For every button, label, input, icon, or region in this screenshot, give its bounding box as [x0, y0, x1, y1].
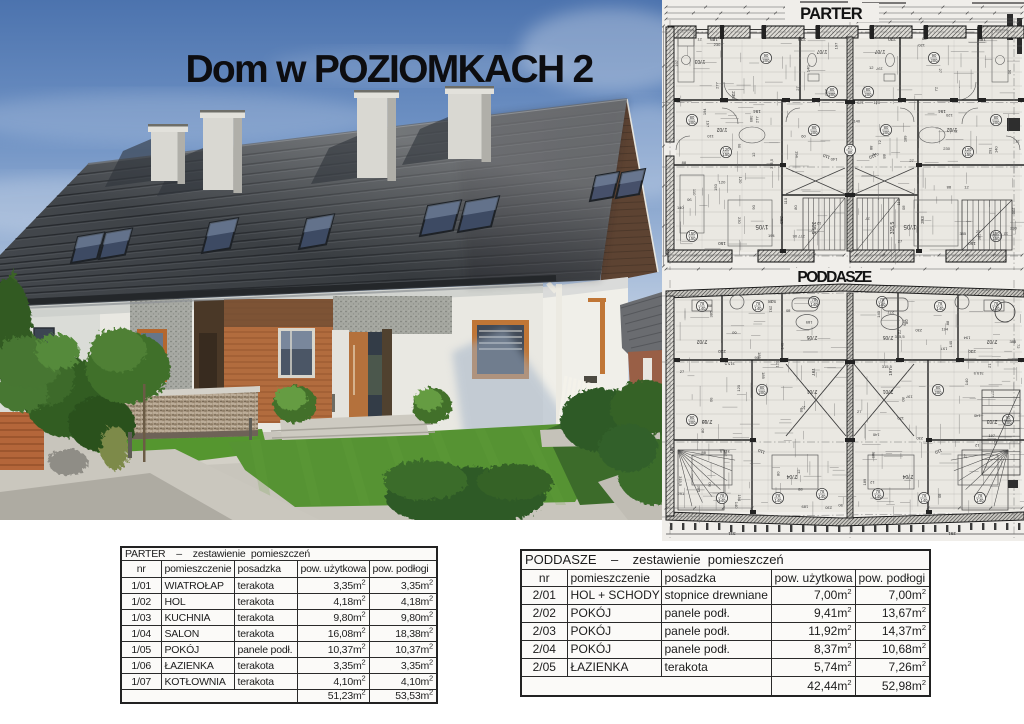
svg-text:538: 538 [768, 299, 776, 304]
svg-text:230: 230 [1012, 208, 1017, 215]
svg-text:140: 140 [805, 65, 810, 72]
svg-text:120: 120 [873, 100, 880, 105]
svg-text:1'/02: 1'/02 [716, 126, 727, 132]
svg-text:230: 230 [1010, 226, 1017, 231]
svg-text:194: 194 [794, 151, 799, 158]
svg-text:27: 27 [898, 239, 903, 244]
svg-text:277: 277 [755, 115, 760, 122]
svg-text:60: 60 [801, 133, 806, 138]
svg-text:197: 197 [674, 59, 679, 66]
svg-text:140: 140 [699, 306, 707, 311]
svg-text:12: 12 [697, 37, 702, 42]
svg-text:194: 194 [768, 233, 775, 238]
svg-text:200: 200 [689, 420, 697, 425]
svg-text:88: 88 [869, 146, 874, 151]
svg-text:393: 393 [920, 216, 925, 224]
svg-text:120: 120 [856, 100, 863, 105]
svg-text:110: 110 [692, 189, 697, 196]
svg-text:200: 200 [759, 390, 767, 395]
svg-text:230: 230 [737, 217, 742, 224]
svg-text:140: 140 [872, 151, 879, 156]
svg-text:140: 140 [937, 306, 945, 311]
svg-text:88: 88 [708, 303, 713, 308]
svg-text:27: 27 [795, 86, 800, 91]
svg-text:150: 150 [993, 236, 1001, 241]
svg-text:797: 797 [811, 368, 816, 376]
svg-text:194: 194 [938, 109, 946, 114]
svg-text:150: 150 [713, 183, 718, 190]
svg-text:197: 197 [905, 395, 912, 400]
svg-text:150: 150 [723, 152, 731, 157]
svg-text:385: 385 [976, 233, 981, 240]
svg-text:385: 385 [709, 310, 714, 317]
svg-text:277: 277 [990, 391, 995, 398]
svg-text:277: 277 [887, 310, 894, 315]
svg-text:200: 200 [763, 58, 771, 63]
svg-text:140: 140 [973, 413, 980, 418]
svg-text:120: 120 [775, 360, 780, 367]
svg-text:120: 120 [897, 416, 904, 421]
svg-text:315,5: 315,5 [678, 476, 683, 487]
svg-text:487: 487 [669, 446, 674, 454]
svg-text:194: 194 [941, 326, 948, 331]
svg-text:140: 140 [780, 342, 785, 349]
svg-text:140: 140 [677, 205, 684, 210]
svg-text:150: 150 [689, 236, 697, 241]
svg-text:PODDASZE: PODDASZE [797, 269, 872, 286]
svg-text:120: 120 [917, 43, 924, 48]
svg-text:12: 12 [869, 65, 874, 70]
svg-text:80: 80 [848, 150, 853, 155]
svg-text:315,5: 315,5 [724, 361, 735, 366]
svg-text:72: 72 [877, 139, 882, 144]
svg-text:200: 200 [935, 390, 943, 395]
svg-text:150: 150 [718, 241, 726, 246]
svg-text:200: 200 [811, 130, 819, 135]
svg-text:140: 140 [755, 306, 763, 311]
svg-text:140: 140 [964, 378, 969, 385]
svg-text:200: 200 [689, 120, 697, 125]
svg-text:385: 385 [959, 231, 966, 236]
svg-text:1'/03: 1'/03 [694, 58, 705, 64]
svg-text:311: 311 [728, 531, 736, 536]
svg-text:189: 189 [903, 135, 908, 142]
svg-text:315,5: 315,5 [769, 158, 774, 169]
svg-text:197: 197 [834, 42, 839, 49]
svg-text:194: 194 [702, 108, 707, 115]
svg-text:230: 230 [824, 506, 831, 511]
svg-text:2'/04: 2'/04 [902, 473, 913, 479]
svg-text:72: 72 [934, 86, 939, 91]
svg-text:80: 80 [793, 205, 798, 210]
svg-text:277: 277 [715, 81, 720, 88]
svg-text:189: 189 [757, 352, 762, 359]
svg-text:197: 197 [940, 346, 947, 351]
svg-text:90: 90 [751, 204, 756, 209]
svg-text:200: 200 [883, 130, 891, 135]
svg-text:2'/01: 2'/01 [882, 388, 893, 394]
svg-text:110: 110 [896, 198, 901, 205]
svg-text:197: 197 [706, 121, 711, 128]
svg-text:140: 140 [830, 157, 837, 162]
svg-text:72: 72 [953, 129, 958, 134]
svg-text:291: 291 [948, 531, 956, 536]
svg-text:385: 385 [723, 449, 728, 456]
svg-text:315,5: 315,5 [973, 371, 984, 376]
svg-text:140: 140 [948, 340, 953, 347]
svg-text:140: 140 [921, 498, 929, 503]
svg-text:140: 140 [811, 302, 819, 307]
svg-text:27: 27 [938, 68, 943, 73]
svg-text:194: 194 [753, 109, 761, 114]
svg-text:80: 80 [776, 471, 781, 476]
svg-text:12: 12 [964, 184, 969, 189]
svg-text:88: 88 [946, 185, 951, 190]
svg-text:385: 385 [697, 486, 702, 493]
svg-text:140: 140 [876, 310, 881, 317]
svg-text:80: 80 [700, 428, 705, 433]
svg-text:120: 120 [719, 179, 726, 184]
svg-text:90: 90 [707, 482, 712, 487]
svg-text:88: 88 [882, 153, 887, 158]
svg-text:200: 200 [865, 92, 873, 97]
svg-text:197: 197 [875, 67, 882, 72]
svg-text:80: 80 [938, 494, 943, 499]
svg-text:385: 385 [1009, 339, 1016, 344]
svg-text:236: 236 [731, 91, 736, 99]
svg-text:140: 140 [853, 118, 860, 123]
svg-text:110: 110 [783, 197, 788, 204]
svg-text:200: 200 [931, 58, 939, 63]
svg-text:80: 80 [798, 407, 803, 412]
svg-text:PARTER: PARTER [800, 5, 863, 23]
svg-text:90: 90 [793, 234, 798, 239]
svg-text:189: 189 [761, 372, 766, 379]
svg-text:12: 12 [974, 443, 979, 448]
svg-text:110: 110 [707, 134, 714, 139]
svg-text:150: 150 [992, 438, 997, 445]
svg-text:393: 393 [779, 216, 784, 224]
svg-text:315,5: 315,5 [882, 364, 893, 369]
svg-text:60: 60 [731, 331, 736, 336]
svg-text:189: 189 [805, 320, 812, 325]
svg-text:1'/07: 1'/07 [874, 48, 885, 54]
svg-text:88: 88 [945, 320, 950, 325]
svg-text:90: 90 [838, 503, 843, 508]
svg-text:315,5: 315,5 [810, 222, 816, 235]
svg-text:12: 12 [796, 469, 801, 474]
svg-text:27: 27 [976, 229, 981, 234]
svg-text:12: 12 [1015, 139, 1020, 144]
svg-text:90: 90 [709, 397, 714, 402]
svg-text:140: 140 [775, 498, 783, 503]
svg-text:189: 189 [903, 319, 908, 326]
svg-text:140: 140 [977, 498, 985, 503]
svg-text:12: 12 [751, 152, 756, 157]
svg-text:150: 150 [968, 241, 976, 246]
svg-text:27: 27 [680, 369, 685, 374]
svg-text:27: 27 [865, 216, 870, 221]
svg-text:230: 230 [968, 349, 976, 354]
svg-text:Dom w POZIOMKACH 2: Dom w POZIOMKACH 2 [185, 48, 593, 91]
svg-text:80: 80 [785, 309, 790, 314]
svg-text:189: 189 [862, 478, 867, 485]
svg-text:385: 385 [749, 116, 754, 123]
svg-text:90: 90 [686, 197, 691, 202]
svg-text:315,5: 315,5 [895, 334, 906, 339]
svg-text:230: 230 [798, 37, 806, 42]
svg-text:197: 197 [988, 433, 995, 438]
svg-text:120: 120 [738, 177, 743, 184]
svg-text:230: 230 [714, 42, 721, 47]
svg-text:277: 277 [797, 234, 804, 239]
svg-text:291: 291 [678, 491, 685, 496]
svg-text:80: 80 [901, 397, 906, 402]
svg-text:88: 88 [701, 450, 706, 455]
svg-text:80: 80 [902, 205, 907, 210]
svg-text:140: 140 [993, 146, 998, 153]
svg-text:230: 230 [943, 146, 950, 151]
svg-text:27: 27 [909, 158, 914, 163]
svg-text:230: 230 [888, 37, 896, 42]
svg-text:12: 12 [988, 363, 993, 368]
svg-text:12: 12 [1003, 232, 1008, 237]
svg-text:230: 230 [916, 436, 923, 441]
svg-text:230: 230 [915, 328, 922, 333]
svg-text:120: 120 [945, 113, 952, 118]
svg-text:385: 385 [871, 452, 876, 459]
svg-text:140: 140 [819, 494, 827, 499]
svg-text:90: 90 [1007, 70, 1012, 75]
svg-text:189: 189 [801, 504, 808, 509]
svg-text:150: 150 [965, 152, 973, 157]
svg-text:200: 200 [993, 120, 1001, 125]
svg-text:72: 72 [897, 330, 902, 335]
svg-text:315,5: 315,5 [890, 222, 896, 235]
svg-text:194: 194 [963, 336, 970, 341]
svg-text:27: 27 [701, 419, 706, 424]
svg-text:120: 120 [736, 384, 741, 391]
svg-text:12: 12 [869, 480, 874, 485]
svg-text:140: 140 [872, 433, 879, 438]
svg-text:12: 12 [816, 221, 821, 226]
svg-text:2'/05: 2'/05 [882, 334, 893, 340]
svg-text:27: 27 [963, 453, 968, 458]
svg-text:291: 291 [988, 147, 993, 154]
svg-text:72: 72 [1016, 344, 1021, 349]
svg-text:90: 90 [737, 144, 742, 149]
svg-text:291: 291 [769, 306, 774, 313]
svg-text:230: 230 [824, 89, 829, 96]
svg-text:27: 27 [857, 409, 862, 414]
svg-text:88: 88 [798, 486, 803, 491]
svg-text:88: 88 [682, 160, 687, 165]
